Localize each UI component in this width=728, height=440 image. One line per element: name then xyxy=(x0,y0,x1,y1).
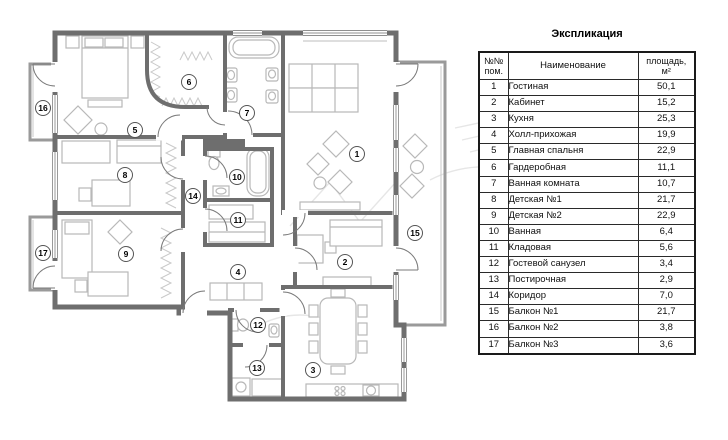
nightstand xyxy=(66,36,79,48)
table-row: 15Балкон №121,7 xyxy=(479,305,695,321)
room-name-cell: Гостиная xyxy=(508,80,638,96)
table-row: 1Гостиная50,1 xyxy=(479,80,695,96)
room-number-cell: 11 xyxy=(479,240,508,256)
room-marker-3: 3 xyxy=(306,363,321,378)
svg-text:7: 7 xyxy=(245,108,250,118)
room-marker-10: 10 xyxy=(230,170,245,185)
bathtub xyxy=(229,37,279,58)
room-marker-7: 7 xyxy=(240,106,255,121)
room-number-cell: 1 xyxy=(479,80,508,96)
toilet xyxy=(231,319,249,331)
room-number-cell: 15 xyxy=(479,305,508,321)
room-name-cell: Коридор xyxy=(508,289,638,305)
room-marker-17: 17 xyxy=(36,246,51,261)
room-name-cell: Кладовая xyxy=(508,240,638,256)
room-name-cell: Ванная xyxy=(508,224,638,240)
room-number-cell: 16 xyxy=(479,321,508,337)
table-row: 4Холл-прихожая19,9 xyxy=(479,128,695,144)
svg-text:10: 10 xyxy=(232,172,242,182)
sink xyxy=(266,68,278,81)
header-room-number: №№пом. xyxy=(479,52,508,80)
svg-text:16: 16 xyxy=(38,103,48,113)
table-row: 13Постирочная2,9 xyxy=(479,273,695,289)
table-row: 7Ванная комната10,7 xyxy=(479,176,695,192)
room-name-cell: Главная спальня xyxy=(508,144,638,160)
svg-text:11: 11 xyxy=(234,215,243,225)
sofa-sectional xyxy=(289,64,358,112)
explication-table: №№пом. Наименование площадь,м² 1Гостиная… xyxy=(478,51,696,355)
room-area-cell: 3,6 xyxy=(638,337,695,354)
table-row: 3Кухня25,3 xyxy=(479,112,695,128)
table-header-row: №№пом. Наименование площадь,м² xyxy=(479,52,695,80)
explication-title: Экспликация xyxy=(478,28,696,41)
room-name-cell: Холл-прихожая xyxy=(508,128,638,144)
washing-machine xyxy=(232,378,250,396)
svg-text:3: 3 xyxy=(311,365,316,375)
room-marker-14: 14 xyxy=(186,189,201,204)
room-number-cell: 12 xyxy=(479,257,508,273)
room-marker-9: 9 xyxy=(119,247,134,262)
table-row: 11Кладовая5,6 xyxy=(479,240,695,256)
room-name-cell: Ванная комната xyxy=(508,176,638,192)
table-row: 14Коридор7,0 xyxy=(479,289,695,305)
cabinet xyxy=(210,283,262,300)
room-area-cell: 22,9 xyxy=(638,144,695,160)
room-area-cell: 25,3 xyxy=(638,112,695,128)
room-name-cell: Кабинет xyxy=(508,96,638,112)
room-number-cell: 8 xyxy=(479,192,508,208)
armchair xyxy=(307,153,329,175)
side-table xyxy=(411,161,424,174)
room-name-cell: Балкон №1 xyxy=(508,305,638,321)
svg-text:15: 15 xyxy=(410,228,420,238)
room-number-cell: 4 xyxy=(479,128,508,144)
room-number-cell: 5 xyxy=(479,144,508,160)
bed-double xyxy=(82,36,128,107)
room-area-cell: 2,9 xyxy=(638,273,695,289)
room-number-cell: 6 xyxy=(479,160,508,176)
sofa xyxy=(330,220,382,246)
bed-single xyxy=(62,220,92,278)
svg-text:13: 13 xyxy=(252,363,262,373)
room-marker-16: 16 xyxy=(36,101,51,116)
tv-cabinet xyxy=(300,202,360,210)
svg-text:12: 12 xyxy=(253,320,263,330)
kitchen-counter xyxy=(306,384,398,397)
sofa xyxy=(117,140,161,163)
screenshot-stage: 1 2 3 4 5 6 7 8 9 10 11 12 13 14 15 16 1… xyxy=(0,0,728,440)
room-marker-15: 15 xyxy=(408,226,423,241)
dining-table xyxy=(320,298,356,364)
room-area-cell: 10,7 xyxy=(638,176,695,192)
bookshelf xyxy=(323,277,371,286)
bidet xyxy=(226,88,237,102)
room-marker-6: 6 xyxy=(182,75,197,90)
room-name-cell: Гардеробная xyxy=(508,160,638,176)
room-number-cell: 13 xyxy=(479,273,508,289)
room-marker-8: 8 xyxy=(118,168,133,183)
room-name-cell: Постирочная xyxy=(508,273,638,289)
room-marker-1: 1 xyxy=(350,147,365,162)
room-area-cell: 7,0 xyxy=(638,289,695,305)
header-room-name: Наименование xyxy=(508,52,638,80)
room-name-cell: Балкон №2 xyxy=(508,321,638,337)
room-area-cell: 3,8 xyxy=(638,321,695,337)
room-area-cell: 6,4 xyxy=(638,224,695,240)
room-area-cell: 11,1 xyxy=(638,160,695,176)
table-row: 5Главная спальня22,9 xyxy=(479,144,695,160)
room-area-cell: 3,4 xyxy=(638,257,695,273)
desk xyxy=(88,272,128,296)
room-area-cell: 21,7 xyxy=(638,305,695,321)
room-marker-12: 12 xyxy=(251,318,266,333)
room-name-cell: Гостевой санузел xyxy=(508,257,638,273)
room-area-cell: 22,9 xyxy=(638,208,695,224)
room-marker-2: 2 xyxy=(338,255,353,270)
explication-panel: Экспликация №№пом. Наименование площадь,… xyxy=(478,28,696,355)
desk xyxy=(92,180,130,206)
side-table xyxy=(95,123,107,135)
svg-text:6: 6 xyxy=(187,77,192,87)
couch xyxy=(62,141,110,163)
nightstand xyxy=(131,36,144,48)
armchair xyxy=(108,220,132,244)
toilet xyxy=(226,68,237,82)
table-row: 12Гостевой санузел3,4 xyxy=(479,257,695,273)
armchair xyxy=(403,134,427,158)
room-number-cell: 2 xyxy=(479,96,508,112)
table-row: 17Балкон №33,6 xyxy=(479,337,695,354)
svg-text:4: 4 xyxy=(236,267,241,277)
room-number-cell: 10 xyxy=(479,224,508,240)
room-number-cell: 17 xyxy=(479,337,508,354)
armchair xyxy=(323,131,349,157)
room-name-cell: Кухня xyxy=(508,112,638,128)
table-row: 6Гардеробная11,1 xyxy=(479,160,695,176)
svg-text:17: 17 xyxy=(38,248,48,258)
room-area-cell: 50,1 xyxy=(638,80,695,96)
sink xyxy=(213,186,229,196)
duct-shaft xyxy=(205,139,245,149)
armchair xyxy=(64,106,92,134)
room-number-cell: 14 xyxy=(479,289,508,305)
room-marker-5: 5 xyxy=(128,123,143,138)
room-number-cell: 3 xyxy=(479,112,508,128)
chair xyxy=(75,280,87,292)
armchair xyxy=(328,170,352,194)
room-area-cell: 21,7 xyxy=(638,192,695,208)
room-area-cell: 19,9 xyxy=(638,128,695,144)
svg-text:5: 5 xyxy=(133,125,138,135)
coffee-table xyxy=(314,177,326,189)
room-name-cell: Детская №2 xyxy=(508,208,638,224)
armchair xyxy=(400,174,424,198)
room-name-cell: Балкон №3 xyxy=(508,337,638,354)
room-marker-11: 11 xyxy=(231,213,246,228)
counter xyxy=(252,379,282,396)
room-area-cell: 15,2 xyxy=(638,96,695,112)
svg-text:8: 8 xyxy=(123,170,128,180)
room-number-cell: 7 xyxy=(479,176,508,192)
bathtub xyxy=(247,148,269,196)
room-area-cell: 5,6 xyxy=(638,240,695,256)
svg-text:9: 9 xyxy=(124,249,129,259)
svg-text:2: 2 xyxy=(343,257,348,267)
table-row: 8Детская №121,7 xyxy=(479,192,695,208)
sink xyxy=(269,324,279,337)
chair xyxy=(79,188,91,201)
room-marker-13: 13 xyxy=(250,361,265,376)
svg-text:1: 1 xyxy=(355,149,360,159)
svg-text:14: 14 xyxy=(188,191,198,201)
table-row: 2Кабинет15,2 xyxy=(479,96,695,112)
floor-plan: 1 2 3 4 5 6 7 8 9 10 11 12 13 14 15 16 1… xyxy=(0,0,478,440)
table-row: 10Ванная6,4 xyxy=(479,224,695,240)
sink xyxy=(266,90,278,103)
table-row: 16Балкон №23,8 xyxy=(479,321,695,337)
room-number-cell: 9 xyxy=(479,208,508,224)
room-marker-4: 4 xyxy=(231,265,246,280)
table-row: 9Детская №222,9 xyxy=(479,208,695,224)
header-room-area: площадь,м² xyxy=(638,52,695,80)
room-name-cell: Детская №1 xyxy=(508,192,638,208)
